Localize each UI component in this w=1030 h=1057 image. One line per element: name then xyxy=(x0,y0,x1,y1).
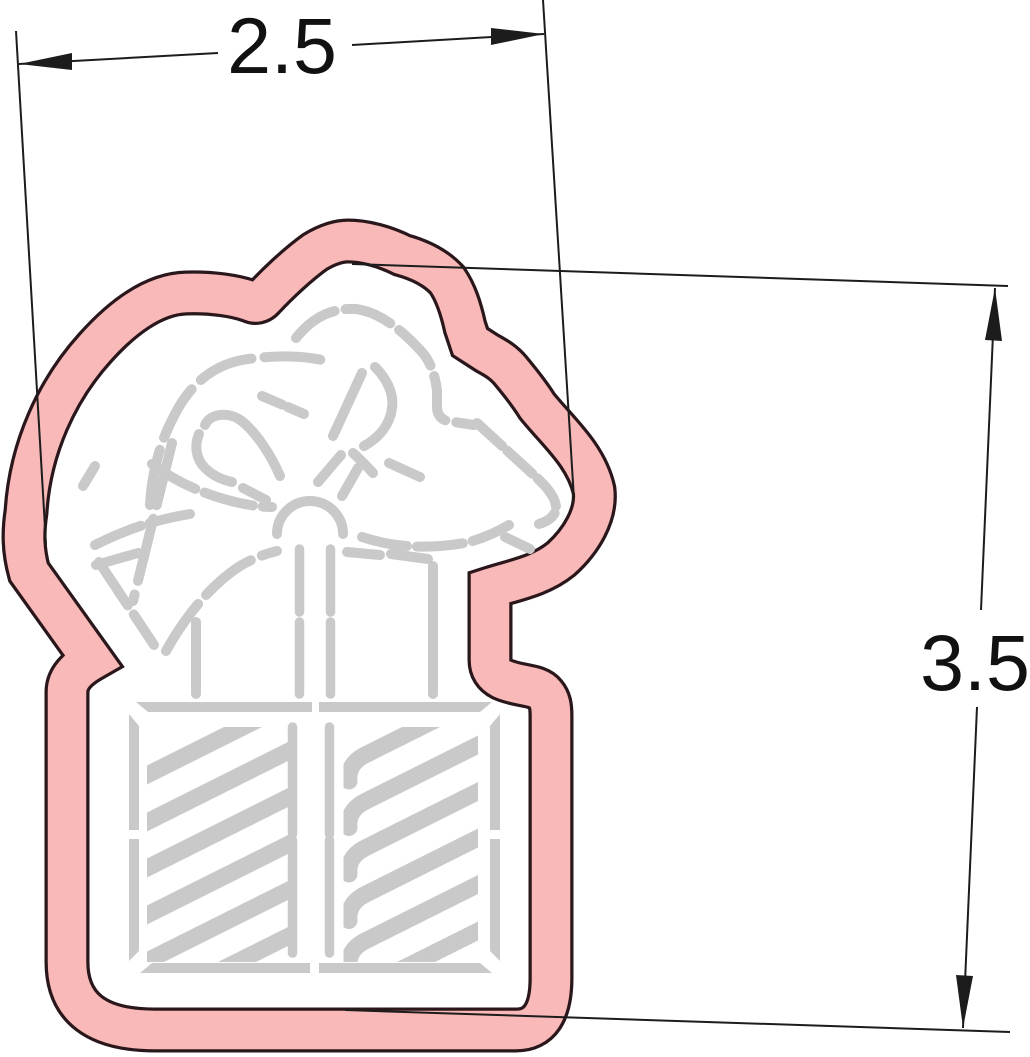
svg-text:2.5: 2.5 xyxy=(227,1,337,90)
svg-text:3.5: 3.5 xyxy=(920,618,1030,707)
